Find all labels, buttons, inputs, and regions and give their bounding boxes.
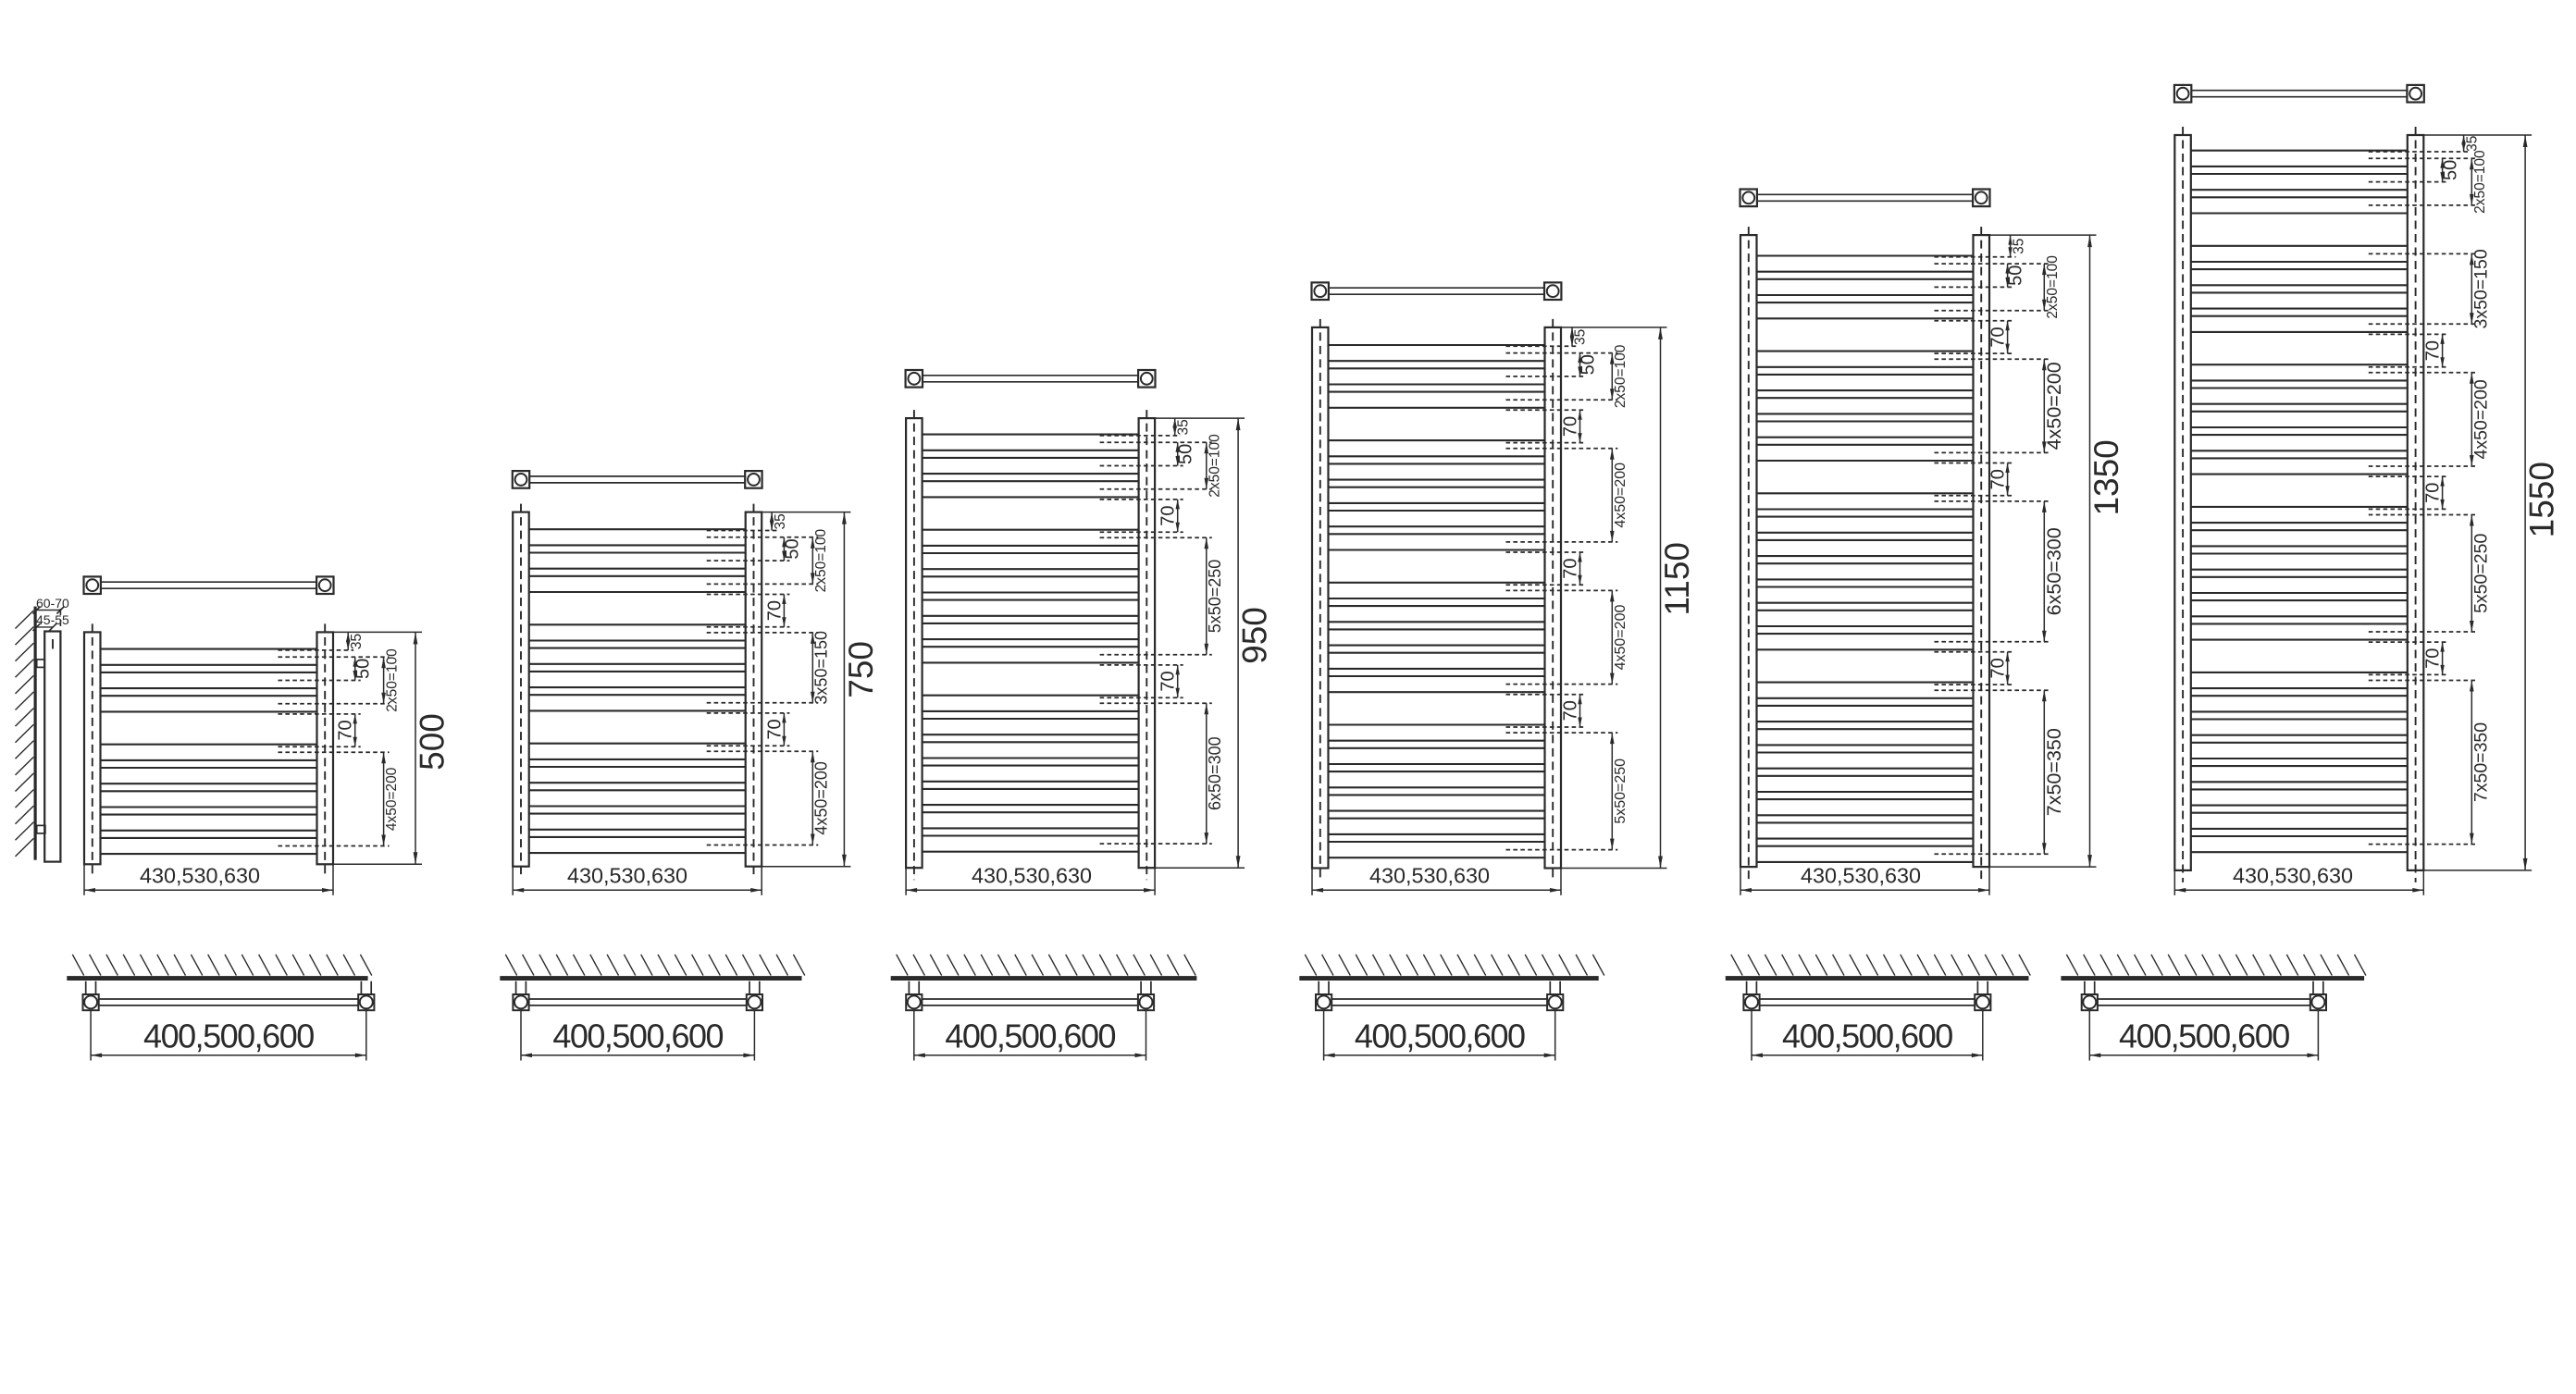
svg-text:70: 70 <box>1561 558 1581 578</box>
svg-text:5x50=250: 5x50=250 <box>2471 534 2492 613</box>
svg-text:430,530,630: 430,530,630 <box>2233 864 2353 888</box>
svg-text:70: 70 <box>1158 671 1179 691</box>
svg-text:950: 950 <box>1236 607 1274 664</box>
svg-text:6x50=300: 6x50=300 <box>1206 736 1224 810</box>
svg-text:50: 50 <box>353 659 374 679</box>
svg-text:1350: 1350 <box>2087 439 2125 515</box>
svg-text:7x50=350: 7x50=350 <box>2471 722 2492 802</box>
svg-text:50: 50 <box>1579 354 1599 375</box>
svg-text:3x50=150: 3x50=150 <box>2471 249 2492 328</box>
svg-text:50: 50 <box>782 538 802 559</box>
svg-text:6x50=300: 6x50=300 <box>2043 527 2065 615</box>
svg-text:400,500,600: 400,500,600 <box>143 1017 314 1055</box>
svg-text:45-55: 45-55 <box>36 612 69 627</box>
svg-text:35: 35 <box>349 634 365 649</box>
svg-text:430,530,630: 430,530,630 <box>972 864 1092 888</box>
svg-text:35: 35 <box>773 513 788 529</box>
svg-text:70: 70 <box>1988 327 2009 347</box>
svg-text:5x50=250: 5x50=250 <box>1206 560 1224 634</box>
svg-text:35: 35 <box>2464 136 2480 152</box>
svg-text:500: 500 <box>414 713 452 771</box>
svg-text:400,500,600: 400,500,600 <box>1782 1017 1952 1055</box>
svg-text:70: 70 <box>1158 505 1179 525</box>
svg-text:400,500,600: 400,500,600 <box>552 1017 723 1055</box>
svg-text:750: 750 <box>842 641 880 698</box>
svg-text:2x50=100: 2x50=100 <box>2472 150 2488 214</box>
svg-text:60-70: 60-70 <box>36 596 69 611</box>
svg-text:50: 50 <box>2006 265 2026 286</box>
svg-text:430,530,630: 430,530,630 <box>567 864 687 888</box>
svg-text:5x50=250: 5x50=250 <box>1613 759 1629 824</box>
svg-text:35: 35 <box>1573 329 1589 345</box>
svg-text:50: 50 <box>1176 444 1196 464</box>
svg-text:4x50=200: 4x50=200 <box>811 761 830 835</box>
svg-text:70: 70 <box>764 600 785 621</box>
svg-text:4x50=200: 4x50=200 <box>1613 463 1629 528</box>
svg-text:430,530,630: 430,530,630 <box>1369 864 1490 888</box>
svg-text:2x50=100: 2x50=100 <box>2045 255 2061 319</box>
svg-text:2x50=100: 2x50=100 <box>813 528 829 592</box>
svg-text:70: 70 <box>1988 658 2009 678</box>
svg-text:35: 35 <box>1175 419 1191 435</box>
svg-text:70: 70 <box>336 720 356 740</box>
svg-text:2x50=100: 2x50=100 <box>1613 344 1629 408</box>
svg-text:7x50=350: 7x50=350 <box>2043 728 2065 816</box>
svg-text:3x50=150: 3x50=150 <box>811 631 830 705</box>
svg-text:430,530,630: 430,530,630 <box>1801 864 1921 888</box>
svg-text:4x50=200: 4x50=200 <box>2471 379 2492 459</box>
svg-text:50: 50 <box>2441 160 2461 180</box>
svg-text:70: 70 <box>2423 483 2444 503</box>
svg-text:400,500,600: 400,500,600 <box>2119 1017 2289 1055</box>
svg-text:1550: 1550 <box>2523 462 2561 537</box>
svg-text:35: 35 <box>2011 239 2026 254</box>
svg-text:4x50=200: 4x50=200 <box>2043 362 2065 450</box>
svg-text:400,500,600: 400,500,600 <box>945 1017 1115 1055</box>
svg-text:430,530,630: 430,530,630 <box>140 864 260 888</box>
svg-text:70: 70 <box>1561 700 1581 721</box>
svg-text:2x50=100: 2x50=100 <box>1207 434 1223 498</box>
svg-text:1150: 1150 <box>1658 542 1696 616</box>
svg-text:70: 70 <box>764 719 785 739</box>
svg-text:4x50=200: 4x50=200 <box>384 767 400 831</box>
svg-text:70: 70 <box>2423 340 2444 361</box>
svg-text:70: 70 <box>1561 416 1581 437</box>
svg-text:70: 70 <box>1988 469 2009 489</box>
svg-text:70: 70 <box>2423 648 2444 669</box>
svg-text:400,500,600: 400,500,600 <box>1355 1017 1525 1055</box>
svg-text:2x50=100: 2x50=100 <box>384 648 400 712</box>
svg-text:4x50=200: 4x50=200 <box>1613 605 1629 671</box>
